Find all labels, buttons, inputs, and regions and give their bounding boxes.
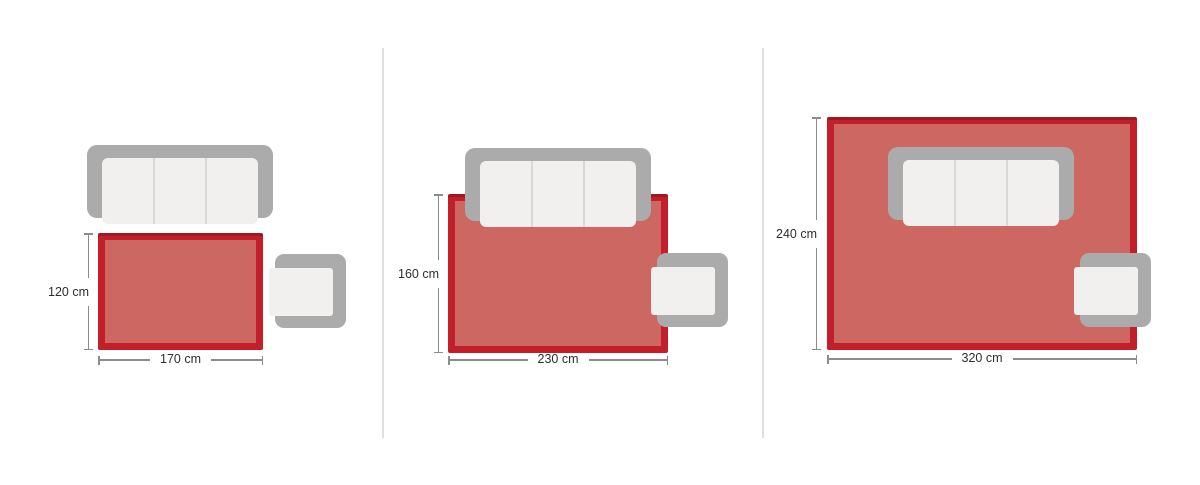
dimension-end-cap xyxy=(434,352,443,354)
dimension-line xyxy=(88,235,90,278)
dimension-line xyxy=(100,359,151,361)
sofa-cushion xyxy=(531,161,584,227)
sofa-cushion xyxy=(480,161,531,227)
sofa-cushion xyxy=(153,158,206,224)
sofa-cushion xyxy=(205,158,258,224)
height-label: 160 cm xyxy=(398,267,439,281)
dimension-line xyxy=(438,196,440,260)
dimension-line xyxy=(211,359,262,361)
dimension-line xyxy=(88,306,90,349)
height-dimension: 160 cm xyxy=(434,194,443,353)
sofa xyxy=(465,148,651,227)
dimension-end-cap xyxy=(812,349,821,351)
height-dimension: 120 cm xyxy=(84,233,93,350)
dimension-end-cap xyxy=(667,356,669,365)
dimension-line xyxy=(816,248,818,349)
height-dimension: 240 cm xyxy=(812,117,821,350)
sofa xyxy=(888,147,1074,226)
height-label: 240 cm xyxy=(776,227,817,241)
dimension-end-cap xyxy=(1136,355,1138,364)
panel-divider xyxy=(762,48,764,438)
armchair xyxy=(1074,253,1151,329)
dimension-line xyxy=(816,119,818,220)
dimension-end-cap xyxy=(84,349,93,351)
dimension-line xyxy=(1013,358,1136,360)
dimension-end-cap xyxy=(262,356,264,365)
sofa xyxy=(87,145,273,224)
width-label: 320 cm xyxy=(962,352,1003,366)
width-dimension: 230 cm xyxy=(448,352,668,368)
width-label: 170 cm xyxy=(160,353,201,367)
rug-size-guide: 120 cm 170 cm xyxy=(0,0,1200,485)
armchair-seat xyxy=(651,267,715,315)
panel-divider xyxy=(382,48,384,438)
rug-field xyxy=(105,240,256,343)
sofa-cushions xyxy=(480,161,636,227)
sofa-cushions xyxy=(102,158,258,224)
dimension-line xyxy=(438,288,440,352)
dimension-line xyxy=(450,359,528,361)
armchair-seat xyxy=(1074,267,1138,315)
sofa-cushion xyxy=(903,160,954,226)
sofa-cushion xyxy=(954,160,1007,226)
armchair xyxy=(269,254,346,330)
width-label: 230 cm xyxy=(538,353,579,367)
dimension-line xyxy=(829,358,952,360)
sofa-cushion xyxy=(102,158,153,224)
height-label: 120 cm xyxy=(48,285,89,299)
sofa-cushions xyxy=(903,160,1059,226)
sofa-cushion xyxy=(583,161,636,227)
rug xyxy=(98,233,263,350)
armchair-seat xyxy=(269,268,333,316)
width-dimension: 170 cm xyxy=(98,352,263,368)
width-dimension: 320 cm xyxy=(827,351,1137,367)
dimension-line xyxy=(589,359,667,361)
armchair xyxy=(651,253,728,329)
sofa-cushion xyxy=(1006,160,1059,226)
